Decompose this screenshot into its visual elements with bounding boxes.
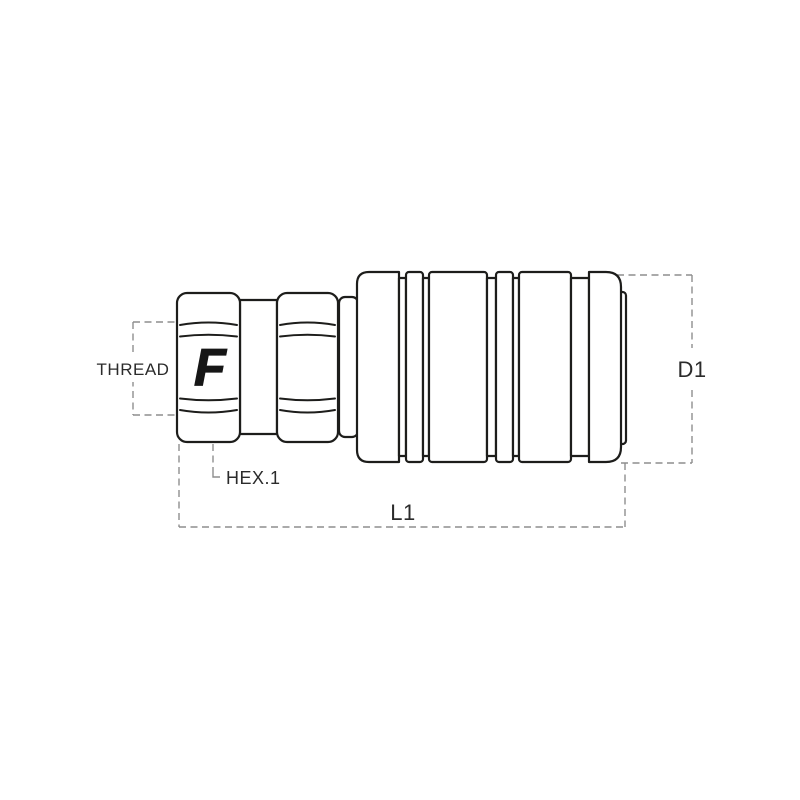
hex-nut-2-body	[277, 293, 338, 442]
thread-label: THREAD	[97, 360, 170, 379]
hex-nut-2	[277, 293, 338, 442]
sleeve-section-c	[519, 272, 571, 462]
l1-label: L1	[390, 500, 415, 525]
sleeve-groove-3	[487, 278, 496, 456]
sleeve-band-1	[406, 272, 423, 462]
hex-label: HEX.1	[226, 468, 281, 488]
coupling-body: F	[177, 272, 626, 462]
collar	[339, 297, 358, 437]
sleeve-band-2	[496, 272, 513, 462]
sleeve-end-cap	[589, 272, 621, 462]
drawing-page: F THREAD HEX.1 L1 D1	[0, 0, 800, 800]
coupling-technical-drawing: F THREAD HEX.1 L1 D1	[0, 0, 800, 800]
sleeve-section-a	[357, 272, 399, 462]
d1-label: D1	[677, 357, 706, 382]
brand-logo-letter: F	[194, 339, 227, 397]
hex1-leader-tick	[213, 468, 220, 477]
hex-connector	[240, 300, 277, 434]
sleeve-section-b	[429, 272, 487, 462]
sleeve-neck	[571, 278, 589, 456]
